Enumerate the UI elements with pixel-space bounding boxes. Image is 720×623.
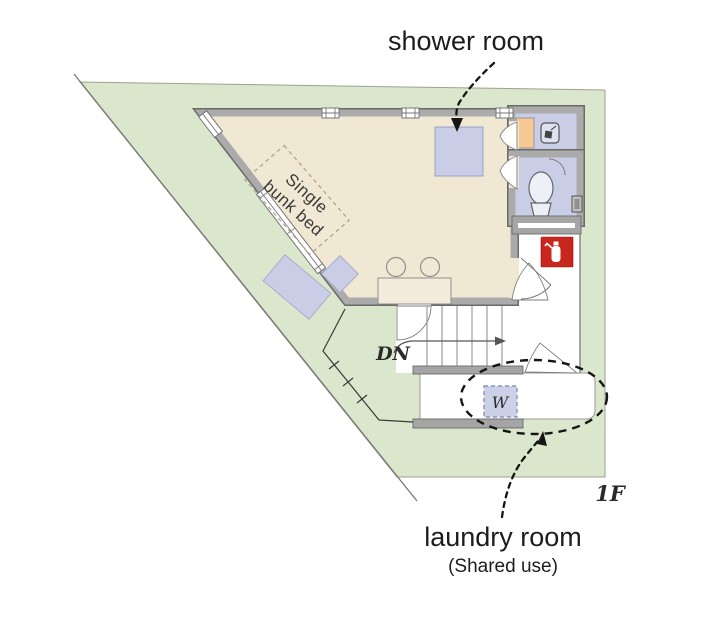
wall-segment-gap: [518, 223, 575, 228]
floor-label: 1F: [595, 481, 627, 506]
shower-room-label: shower room: [388, 26, 544, 56]
stairs-dn-label: DN: [375, 343, 410, 365]
toilet-tank: [531, 203, 551, 216]
washer-label: W: [492, 393, 510, 412]
window: [322, 108, 339, 118]
wall-segment: [413, 419, 523, 428]
table: [378, 278, 451, 304]
washbasin-drain-icon: [544, 131, 552, 139]
floor-plan-canvas: Single bunk bed: [0, 0, 720, 623]
window: [496, 108, 513, 118]
wall-segment: [413, 366, 523, 374]
laundry-room-label: laundry room: [424, 522, 582, 552]
laundry-note-label: (Shared use): [448, 556, 558, 577]
floor-plan-page: Single bunk bed: [0, 0, 720, 623]
wall-vent-inner: [575, 199, 580, 209]
window: [402, 108, 419, 118]
shower-unit: [435, 127, 483, 176]
fire-extinguisher-sign: [541, 237, 573, 267]
toilet-bowl: [529, 172, 553, 204]
